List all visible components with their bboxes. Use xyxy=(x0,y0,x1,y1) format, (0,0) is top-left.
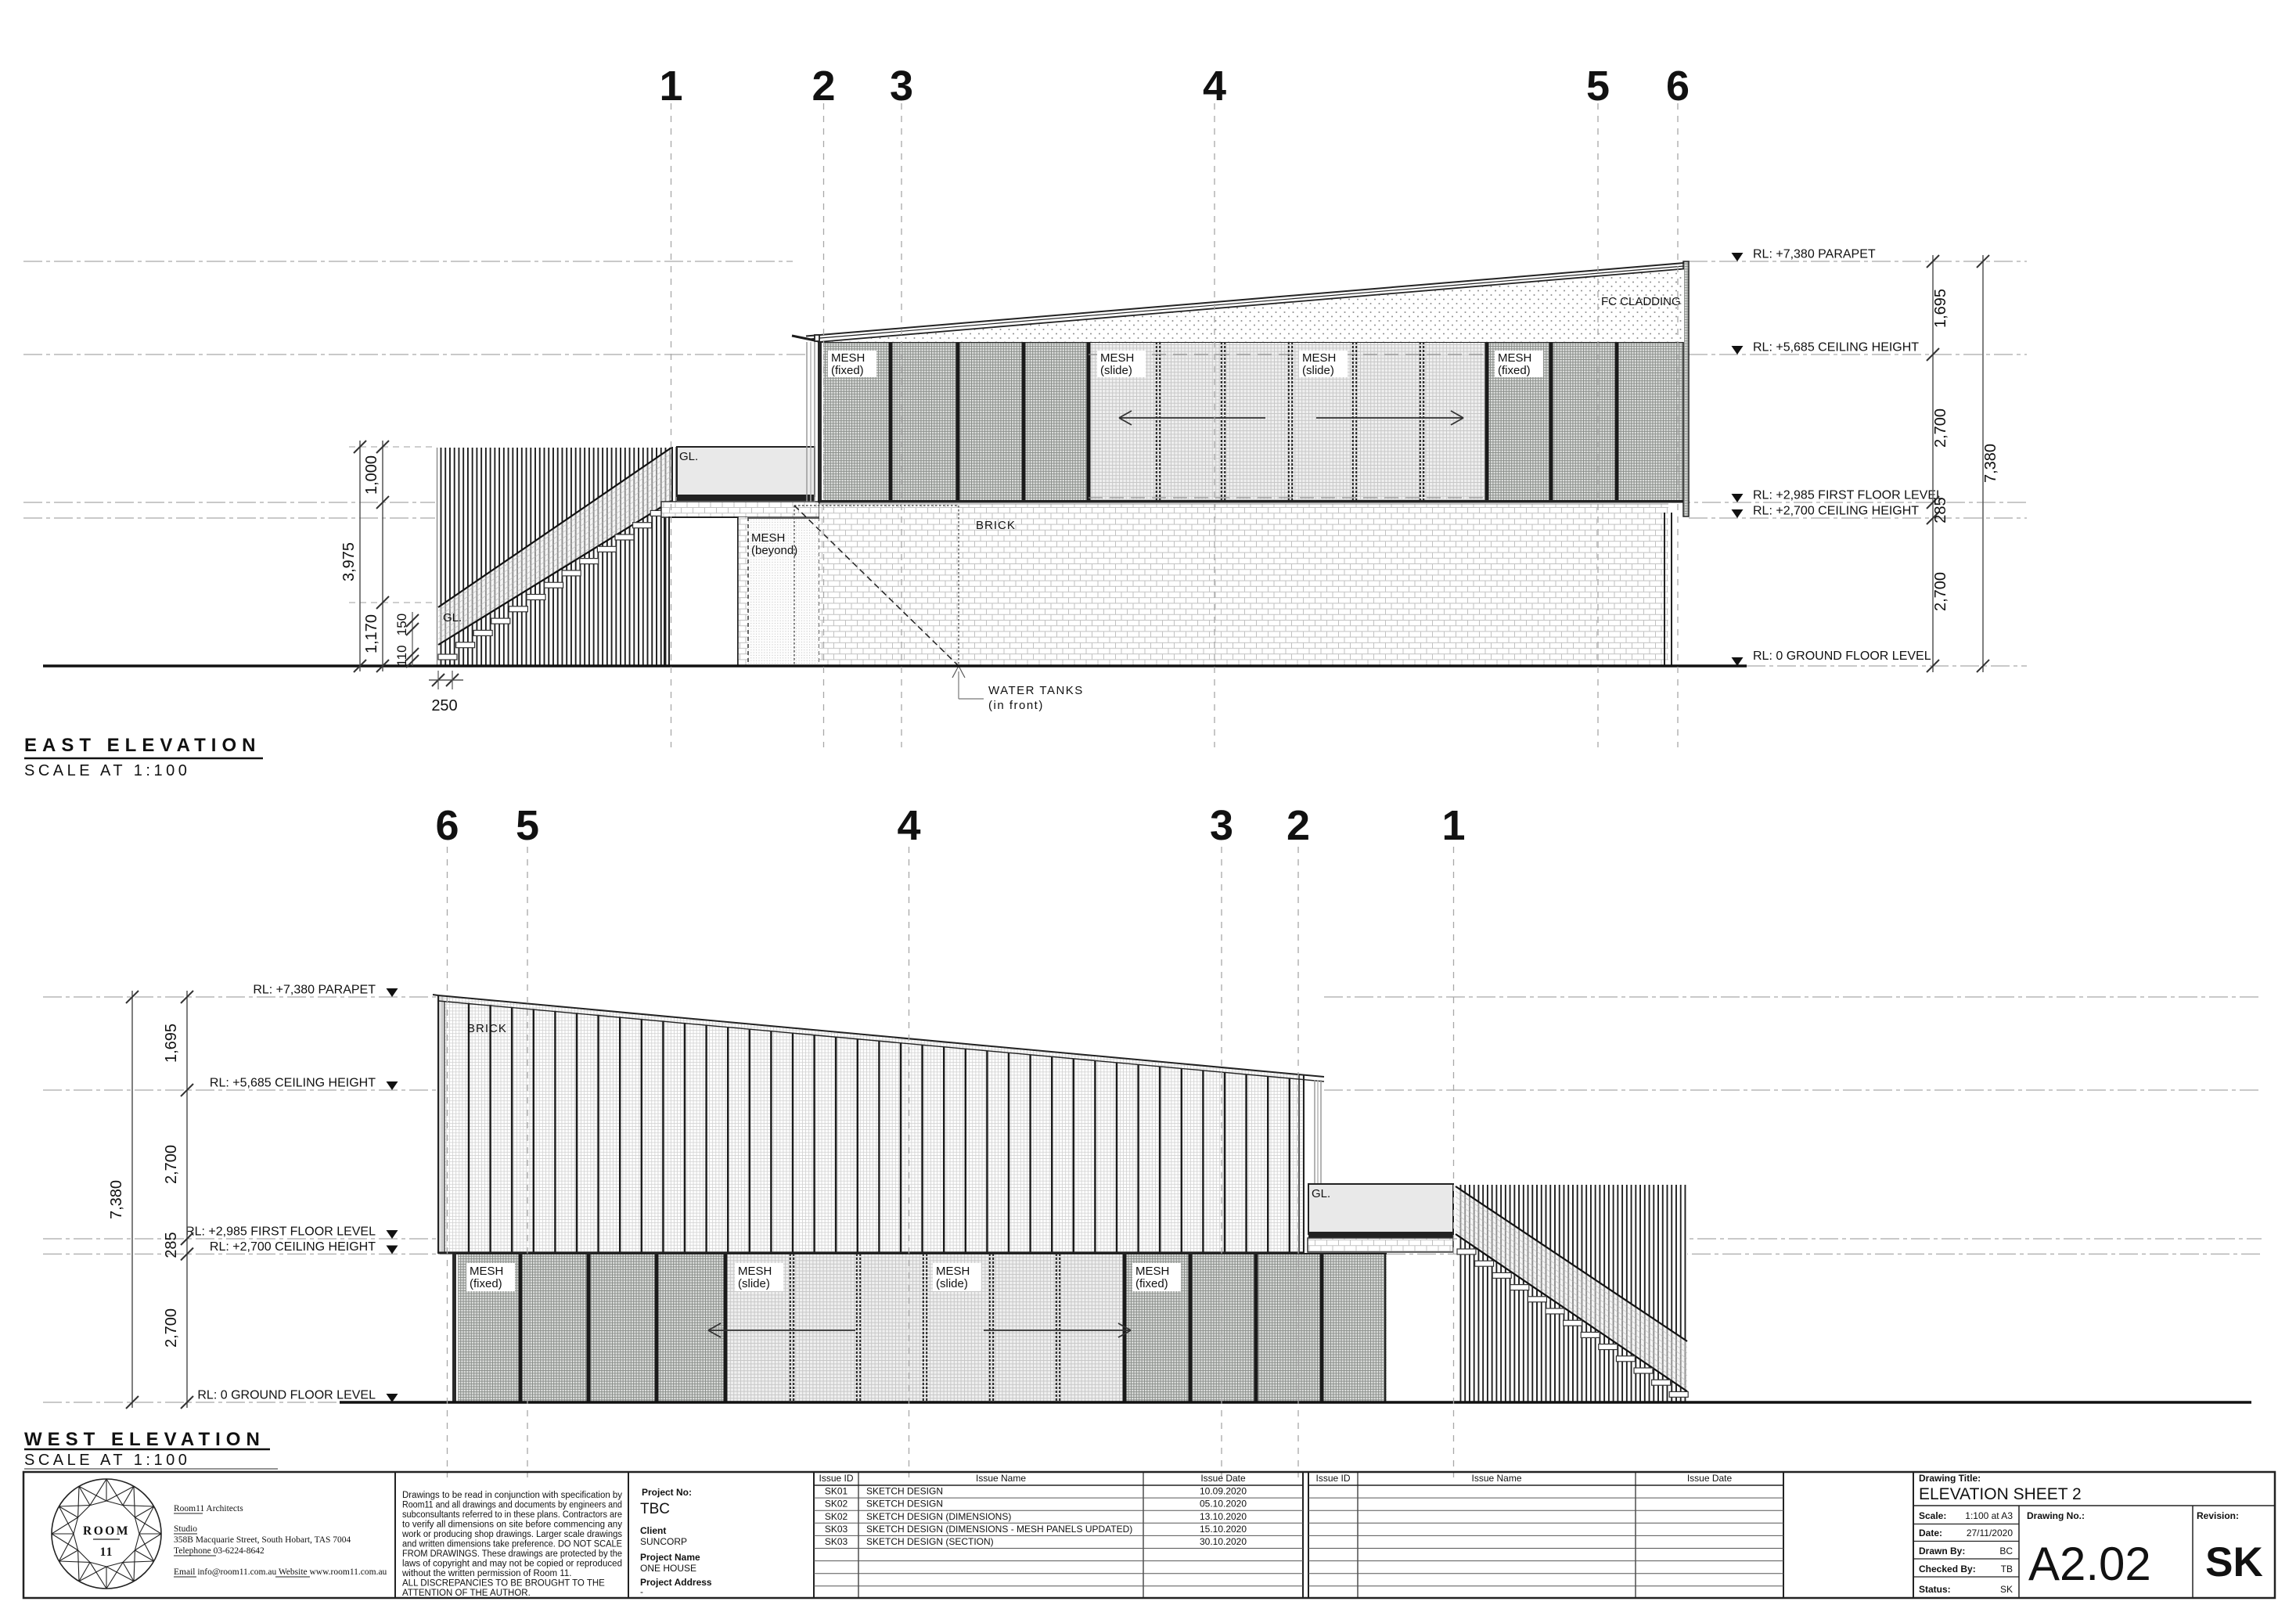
svg-text:GL.: GL. xyxy=(1312,1187,1330,1200)
svg-text:2,700: 2,700 xyxy=(1932,572,1949,611)
svg-text:110: 110 xyxy=(394,645,409,666)
svg-text:MESH: MESH xyxy=(470,1265,503,1278)
svg-text:4: 4 xyxy=(1203,63,1226,110)
svg-text:RL: 0 GROUND FLOOR LEVEL: RL: 0 GROUND FLOOR LEVEL xyxy=(197,1389,376,1402)
svg-text:285: 285 xyxy=(163,1232,180,1258)
svg-text:MESH: MESH xyxy=(1100,351,1134,365)
svg-text:and written dimensions take pr: and written dimensions take preference. … xyxy=(402,1540,622,1549)
svg-text:SCALE AT 1:100: SCALE AT 1:100 xyxy=(24,762,190,779)
svg-text:RL: +2,700 CEILING HEIGHT: RL: +2,700 CEILING HEIGHT xyxy=(1753,505,1919,518)
svg-text:-: - xyxy=(640,1586,643,1597)
svg-text:Issue Date: Issue Date xyxy=(1200,1473,1246,1484)
svg-text:Room11 Architects: Room11 Architects xyxy=(174,1504,243,1513)
svg-text:SKETCH DESIGN (DIMENSIONS): SKETCH DESIGN (DIMENSIONS) xyxy=(866,1511,1011,1522)
svg-text:SK03: SK03 xyxy=(825,1524,848,1535)
svg-text:1:100 at A3: 1:100 at A3 xyxy=(1965,1510,2013,1521)
svg-text:6: 6 xyxy=(1666,63,1690,110)
svg-text:without the written permission: without the written permission of Room 1… xyxy=(401,1569,571,1578)
svg-text:RL: 0 GROUND FLOOR LEVEL: RL: 0 GROUND FLOOR LEVEL xyxy=(1753,650,1931,663)
svg-text:7,380: 7,380 xyxy=(108,1180,125,1219)
svg-text:Drawing No.:: Drawing No.: xyxy=(2027,1510,2085,1521)
svg-text:SKETCH DESIGN: SKETCH DESIGN xyxy=(866,1499,943,1510)
svg-text:BC: BC xyxy=(1999,1546,2013,1556)
svg-text:250: 250 xyxy=(431,697,457,714)
svg-text:ALL DISCREPANCIES TO BE BROUGH: ALL DISCREPANCIES TO BE BROUGHT TO THE xyxy=(402,1579,605,1589)
svg-text:Project Address: Project Address xyxy=(640,1577,712,1588)
svg-text:Date:: Date: xyxy=(1919,1528,1942,1538)
svg-text:RL: +2,985 FIRST FLOOR LEVEL: RL: +2,985 FIRST FLOOR LEVEL xyxy=(1753,489,1943,502)
svg-text:SK: SK xyxy=(2000,1584,2013,1595)
svg-text:WEST ELEVATION: WEST ELEVATION xyxy=(24,1429,265,1450)
svg-text:work or producing shop drawing: work or producing shop drawings. Larger … xyxy=(401,1530,622,1539)
svg-text:Telephone 03-6224-8642: Telephone 03-6224-8642 xyxy=(174,1546,265,1556)
svg-text:Checked By:: Checked By: xyxy=(1919,1564,1976,1574)
svg-text:Status:: Status: xyxy=(1919,1584,1951,1595)
svg-text:Revision:: Revision: xyxy=(2197,1510,2239,1521)
svg-text:3,975: 3,975 xyxy=(340,542,358,581)
svg-text:ONE HOUSE: ONE HOUSE xyxy=(640,1563,696,1574)
svg-text:FROM DRAWINGS. These drawings: FROM DRAWINGS. These drawings are protec… xyxy=(402,1549,622,1559)
svg-text:SKETCH DESIGN (DIMENSIONS - ME: SKETCH DESIGN (DIMENSIONS - MESH PANELS … xyxy=(866,1524,1132,1535)
svg-text:(fixed): (fixed) xyxy=(1498,364,1531,377)
svg-text:MESH: MESH xyxy=(738,1265,772,1278)
svg-text:Email info@room11.com.au Websi: Email info@room11.com.au Website www.roo… xyxy=(174,1567,387,1577)
svg-text:EAST ELEVATION: EAST ELEVATION xyxy=(24,735,261,756)
svg-text:2,700: 2,700 xyxy=(1932,408,1949,448)
svg-text:(slide): (slide) xyxy=(1302,364,1334,377)
svg-text:SK01: SK01 xyxy=(825,1486,848,1497)
svg-text:SKETCH DESIGN (SECTION): SKETCH DESIGN (SECTION) xyxy=(866,1536,994,1547)
svg-text:Drawn By:: Drawn By: xyxy=(1919,1546,1965,1556)
svg-text:RL: +5,685 CEILING HEIGHT: RL: +5,685 CEILING HEIGHT xyxy=(210,1077,376,1090)
svg-text:2: 2 xyxy=(812,63,835,110)
svg-text:TBC: TBC xyxy=(640,1501,670,1517)
svg-text:MESH: MESH xyxy=(1135,1265,1169,1278)
svg-text:Drawings to be read in conjunc: Drawings to be read in conjunction with … xyxy=(402,1491,622,1500)
svg-text:1,000: 1,000 xyxy=(363,455,380,495)
svg-text:GL.: GL. xyxy=(679,450,698,463)
svg-text:(in front): (in front) xyxy=(988,699,1044,712)
svg-text:2,700: 2,700 xyxy=(163,1308,180,1348)
svg-text:MESH: MESH xyxy=(936,1265,970,1278)
svg-text:(fixed): (fixed) xyxy=(1135,1277,1168,1290)
svg-text:MESH: MESH xyxy=(831,351,865,365)
svg-text:SCALE AT 1:100: SCALE AT 1:100 xyxy=(24,1452,190,1469)
svg-text:1,170: 1,170 xyxy=(363,614,380,653)
svg-text:ATTENTION OF THE AUTHOR.: ATTENTION OF THE AUTHOR. xyxy=(402,1589,531,1598)
svg-text:RL: +7,380 PARAPET: RL: +7,380 PARAPET xyxy=(1753,248,1876,261)
svg-text:358B Macquarie Street, South H: 358B Macquarie Street, South Hobart, TAS… xyxy=(174,1535,351,1545)
svg-text:150: 150 xyxy=(394,614,409,635)
svg-text:RL: +7,380 PARAPET: RL: +7,380 PARAPET xyxy=(253,984,376,997)
svg-text:(beyond): (beyond) xyxy=(751,544,797,557)
svg-text:Issue ID: Issue ID xyxy=(819,1473,853,1484)
svg-text:(fixed): (fixed) xyxy=(831,364,864,377)
svg-text:1: 1 xyxy=(659,63,682,110)
svg-text:FC CLADDING: FC CLADDING xyxy=(1601,295,1681,308)
svg-text:Scale:: Scale: xyxy=(1919,1510,1946,1521)
svg-text:A2.02: A2.02 xyxy=(2028,1538,2151,1590)
svg-text:BRICK: BRICK xyxy=(467,1022,507,1035)
svg-text:5: 5 xyxy=(516,802,539,849)
svg-text:10.09.2020: 10.09.2020 xyxy=(1200,1486,1247,1497)
svg-text:RL: +2,985 FIRST FLOOR LEVEL: RL: +2,985 FIRST FLOOR LEVEL xyxy=(185,1225,376,1239)
svg-text:subconsultants referred to in: subconsultants referred to in these plan… xyxy=(402,1510,622,1520)
svg-text:Project No:: Project No: xyxy=(642,1487,692,1498)
svg-text:RL: +2,700 CEILING HEIGHT: RL: +2,700 CEILING HEIGHT xyxy=(210,1240,376,1254)
svg-text:11: 11 xyxy=(100,1546,113,1559)
svg-text:Issue Name: Issue Name xyxy=(1471,1473,1521,1484)
svg-text:(slide): (slide) xyxy=(738,1277,770,1290)
svg-text:to verify all dimensions on si: to verify all dimensions on site before … xyxy=(402,1520,622,1530)
svg-text:Room11 and all drawings and do: Room11 and all drawings and documents by… xyxy=(402,1501,622,1510)
svg-text:MESH: MESH xyxy=(1498,351,1531,365)
svg-text:4: 4 xyxy=(897,802,920,849)
svg-text:2: 2 xyxy=(1287,802,1310,849)
svg-text:3: 3 xyxy=(890,63,913,110)
svg-text:(slide): (slide) xyxy=(1100,364,1132,377)
svg-text:SK02: SK02 xyxy=(825,1499,848,1510)
svg-text:(slide): (slide) xyxy=(936,1277,968,1290)
svg-text:Issue Name: Issue Name xyxy=(976,1473,1026,1484)
svg-text:15.10.2020: 15.10.2020 xyxy=(1200,1524,1247,1535)
svg-text:GL.: GL. xyxy=(443,611,462,624)
svg-text:SK: SK xyxy=(2205,1539,2263,1585)
svg-text:30.10.2020: 30.10.2020 xyxy=(1200,1536,1247,1547)
svg-text:ELEVATION SHEET 2: ELEVATION SHEET 2 xyxy=(1919,1485,2082,1503)
svg-text:Client: Client xyxy=(640,1525,666,1536)
svg-text:285: 285 xyxy=(1932,497,1949,523)
svg-text:SK03: SK03 xyxy=(825,1536,848,1547)
svg-text:1,695: 1,695 xyxy=(1932,289,1949,328)
svg-text:1: 1 xyxy=(1441,802,1465,849)
svg-text:laws of copyright and may not: laws of copyright and may not be copied … xyxy=(402,1560,622,1569)
svg-text:7,380: 7,380 xyxy=(1982,444,1999,483)
svg-text:27/11/2020: 27/11/2020 xyxy=(1967,1528,2013,1538)
svg-text:Issue ID: Issue ID xyxy=(1315,1473,1350,1484)
svg-text:BRICK: BRICK xyxy=(976,519,1016,532)
svg-text:Project Name: Project Name xyxy=(640,1552,700,1563)
svg-text:05.10.2020: 05.10.2020 xyxy=(1200,1499,1247,1510)
svg-text:Issue Date: Issue Date xyxy=(1687,1473,1733,1484)
svg-text:SK02: SK02 xyxy=(825,1511,848,1522)
svg-text:Drawing Title:: Drawing Title: xyxy=(1919,1473,1981,1484)
svg-text:MESH: MESH xyxy=(751,531,785,545)
svg-text:2,700: 2,700 xyxy=(163,1145,180,1184)
svg-text:5: 5 xyxy=(1586,63,1610,110)
svg-text:1,695: 1,695 xyxy=(163,1024,180,1063)
svg-text:3: 3 xyxy=(1210,802,1233,849)
svg-text:SKETCH DESIGN: SKETCH DESIGN xyxy=(866,1486,943,1497)
svg-text:RL: +5,685 CEILING HEIGHT: RL: +5,685 CEILING HEIGHT xyxy=(1753,341,1919,354)
svg-text:6: 6 xyxy=(435,802,459,849)
svg-text:Studio: Studio xyxy=(174,1524,197,1534)
svg-text:ROOM: ROOM xyxy=(83,1524,130,1538)
svg-text:13.10.2020: 13.10.2020 xyxy=(1200,1511,1247,1522)
svg-text:SUNCORP: SUNCORP xyxy=(640,1536,687,1547)
svg-text:TB: TB xyxy=(2001,1564,2013,1574)
svg-text:(fixed): (fixed) xyxy=(470,1277,502,1290)
svg-text:MESH: MESH xyxy=(1302,351,1336,365)
svg-text:WATER TANKS: WATER TANKS xyxy=(988,684,1084,697)
